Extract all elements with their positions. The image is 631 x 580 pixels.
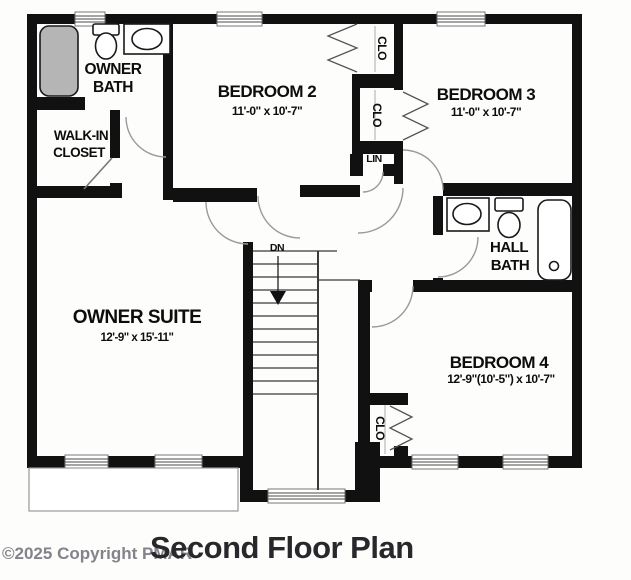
- door-hall-extra-arc: [358, 188, 403, 233]
- window-owner-suite-1: [65, 455, 108, 469]
- door-vestibule: [126, 117, 166, 157]
- clo-bedroom4-label: CLO: [373, 416, 387, 440]
- bedroom3-dims: 11'-0" x 10'-7": [451, 105, 521, 119]
- walkin-closet-label-1: WALK-IN: [54, 128, 108, 143]
- bedroom2-dims: 11'-0" x 10'-7": [232, 104, 302, 118]
- door-hall-bath: [438, 237, 478, 277]
- hall-bath-label-2: BATH: [491, 257, 530, 274]
- closet-lines: [375, 26, 385, 454]
- hall-toilet-tank: [495, 198, 523, 211]
- wall-bedroom4-left: [358, 283, 370, 456]
- wall-owner-door-stub: [243, 188, 257, 202]
- door-owner-suite: [206, 202, 248, 244]
- bifold-closet-bedroom2: [328, 24, 357, 72]
- stairs-down-label: DN: [270, 242, 284, 254]
- owner-suite-dims: 12'-9" x 15'-11": [101, 332, 174, 344]
- wall-lin-bottom-stub: [383, 164, 403, 176]
- wall-clo1-bottom: [352, 74, 403, 88]
- window-bedroom4-2: [503, 455, 548, 469]
- wall-bedroom4-top-right: [413, 280, 572, 292]
- owner-toilet-bowl: [96, 33, 117, 59]
- owner-bath-label-1: OWNER: [85, 61, 142, 78]
- wall-bottom-owner: [27, 456, 253, 468]
- bifold-closet-bedroom4: [390, 406, 412, 450]
- staircase: [253, 251, 360, 490]
- room-labels: BEDROOM 2 11'-0" x 10'-7" BEDROOM 3 11'-…: [53, 36, 555, 440]
- wall-bedroom4-closet-top: [358, 393, 408, 405]
- wall-left: [27, 14, 37, 468]
- wall-hallbath-left-a: [433, 196, 443, 235]
- wall-closet-right: [110, 110, 120, 158]
- hall-toilet-bowl: [498, 213, 520, 238]
- wall-right: [572, 14, 582, 468]
- wall-bedroom4-closet-stub: [394, 446, 408, 458]
- door-linen: [363, 172, 383, 192]
- plan-title: Second Floor Plan: [150, 530, 490, 566]
- wall-ownerbath-closet: [27, 97, 85, 110]
- floor-plan-page: BEDROOM 2 11'-0" x 10'-7" BEDROOM 3 11'-…: [0, 0, 631, 580]
- clo-bedroom2-label: CLO: [375, 36, 389, 60]
- hall-bath-label-1: HALL: [490, 239, 528, 256]
- bifold-closet-bedroom3: [403, 92, 428, 140]
- bedroom2-label: BEDROOM 2: [218, 82, 317, 101]
- owner-bathtub: [40, 26, 78, 96]
- window-bay: [268, 489, 345, 503]
- owner-sink: [132, 29, 162, 50]
- clo-bedroom3-label: CLO: [370, 103, 384, 127]
- window-owner-suite-2: [155, 455, 202, 469]
- wall-top: [27, 14, 582, 24]
- door-bedroom2: [258, 196, 300, 238]
- wall-lin-left: [350, 154, 363, 176]
- porch-outline: [29, 468, 238, 511]
- wall-closet-bottom: [27, 186, 122, 198]
- wall-stairs-left: [243, 242, 253, 456]
- window-bedroom4-1: [412, 455, 458, 469]
- door-bedroom3: [403, 150, 443, 190]
- bedroom3-label: BEDROOM 3: [437, 85, 536, 104]
- owner-suite-label: OWNER SUITE: [73, 307, 202, 328]
- bedroom4-label: BEDROOM 4: [450, 353, 550, 372]
- linen-label: LIN: [366, 153, 381, 165]
- wall-bedroom3-bottom: [443, 183, 572, 196]
- hall-tub-drain: [550, 262, 559, 271]
- window-bedroom2: [217, 12, 262, 26]
- door-walkin-closet: [84, 158, 112, 189]
- door-bedroom4: [372, 286, 413, 327]
- floor-plan-drawing: BEDROOM 2 11'-0" x 10'-7" BEDROOM 3 11'-…: [0, 0, 631, 580]
- window-bedroom3: [437, 12, 485, 26]
- hall-sink: [453, 204, 481, 225]
- walkin-closet-label-2: CLOSET: [53, 145, 106, 160]
- bedroom4-dims: 12'-9"(10'-5") x 10'-7": [447, 372, 555, 386]
- owner-bath-label-2: BATH: [93, 79, 133, 96]
- wall-hall-top: [300, 185, 360, 197]
